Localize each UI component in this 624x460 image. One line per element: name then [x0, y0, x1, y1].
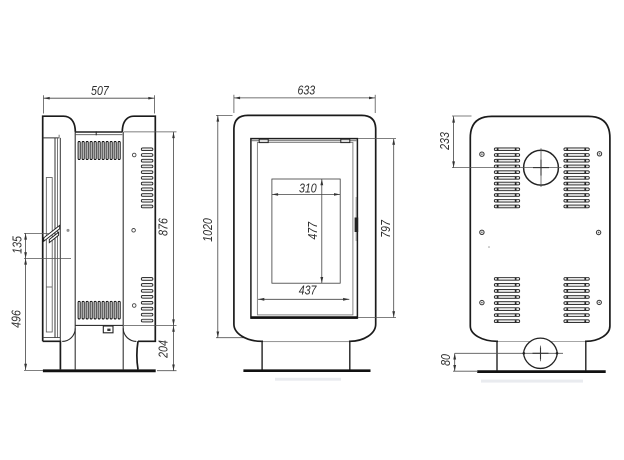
svg-text:797: 797: [379, 219, 393, 238]
svg-text:507: 507: [91, 84, 110, 98]
svg-text:310: 310: [299, 181, 317, 195]
svg-text:204: 204: [157, 340, 171, 359]
svg-text:633: 633: [297, 83, 315, 97]
svg-text:477: 477: [306, 221, 320, 240]
svg-text:876: 876: [157, 218, 171, 236]
svg-text:80: 80: [439, 354, 453, 366]
svg-text:496: 496: [9, 310, 23, 328]
svg-text:437: 437: [299, 283, 318, 297]
svg-text:233: 233: [438, 132, 452, 151]
svg-text:135: 135: [10, 236, 24, 254]
svg-text:1020: 1020: [201, 218, 215, 242]
